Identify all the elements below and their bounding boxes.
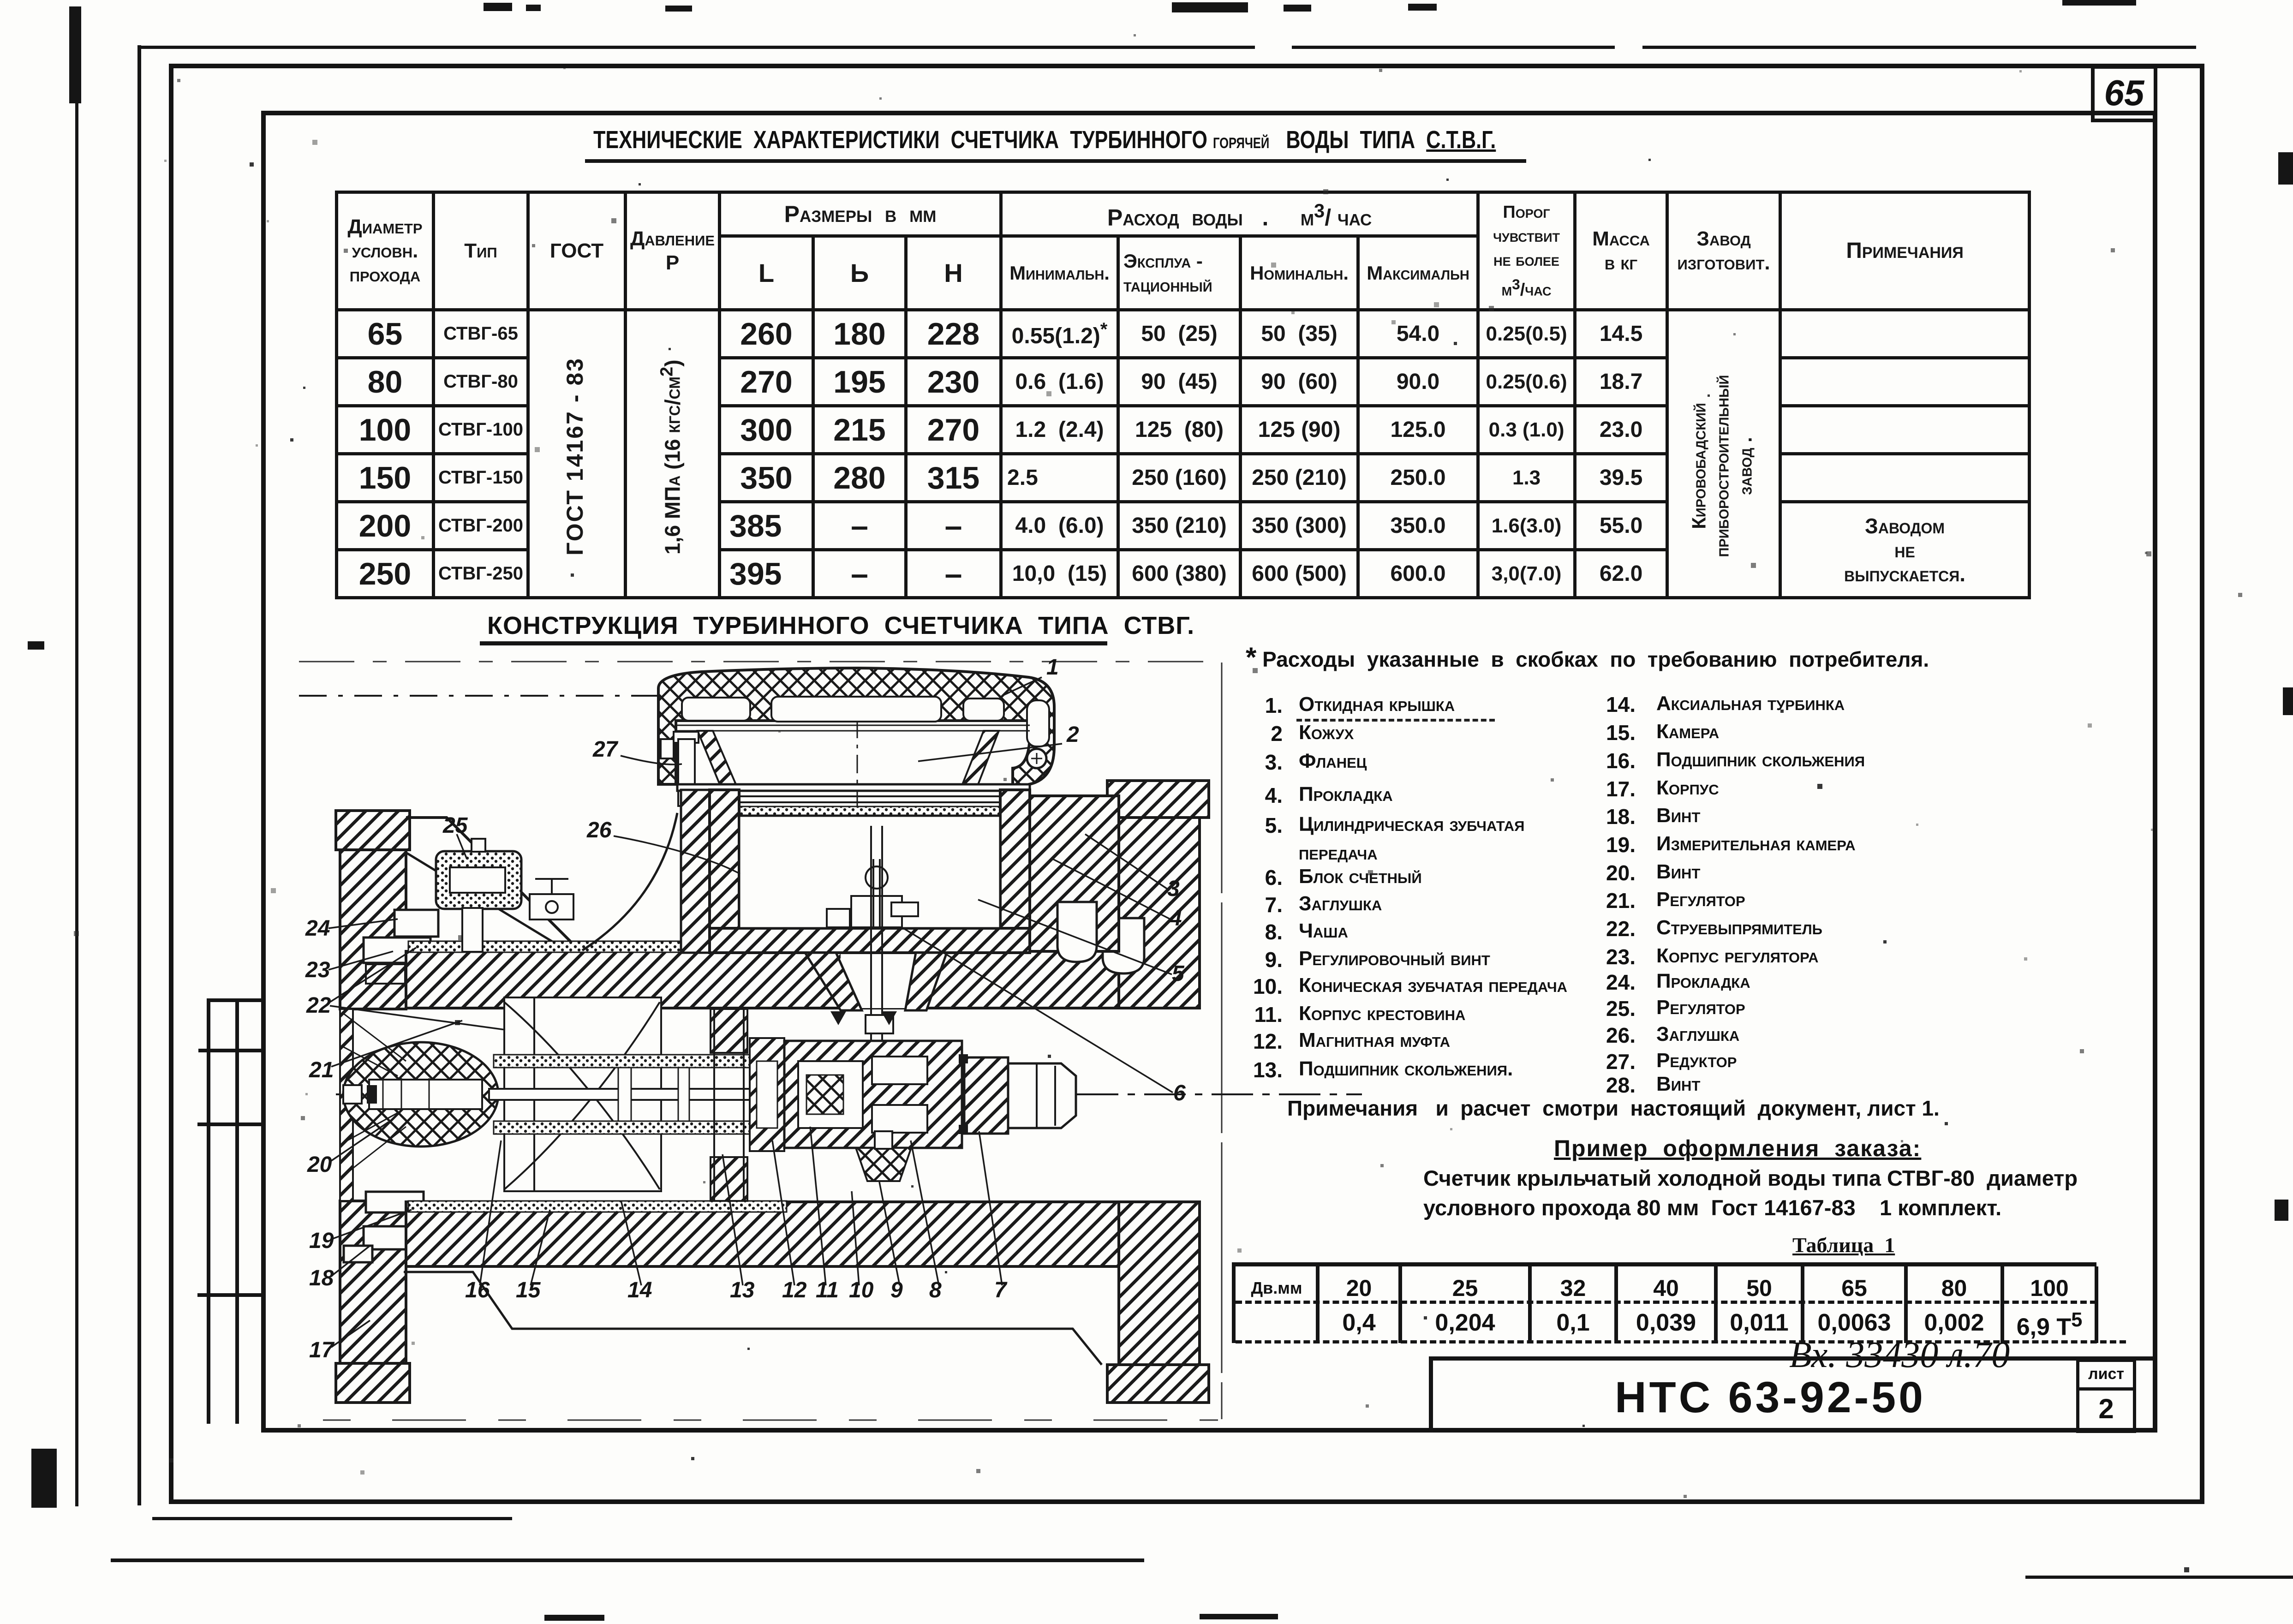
svg-text:9: 9 [890,1278,903,1302]
svg-text:17: 17 [309,1338,335,1362]
svg-text:20: 20 [307,1152,332,1177]
svg-text:19: 19 [309,1229,334,1253]
svg-text:15: 15 [516,1278,541,1302]
svg-text:5: 5 [1172,961,1185,986]
svg-text:12: 12 [782,1278,807,1302]
svg-text:7: 7 [994,1278,1008,1302]
svg-text:21: 21 [309,1058,334,1082]
svg-text:24: 24 [305,916,330,941]
svg-text:13: 13 [730,1278,755,1302]
svg-text:22: 22 [306,993,331,1018]
svg-text:18: 18 [309,1266,334,1290]
svg-text:4: 4 [1169,906,1182,931]
svg-text:8: 8 [929,1278,942,1302]
svg-text:26: 26 [586,818,612,842]
svg-text:6: 6 [1173,1081,1186,1105]
svg-text:16: 16 [465,1278,490,1302]
svg-text:27: 27 [592,737,619,762]
svg-text:11: 11 [816,1278,839,1302]
svg-text:3: 3 [1167,877,1180,901]
svg-text:25: 25 [442,813,468,838]
svg-text:10: 10 [849,1278,874,1302]
svg-text:2: 2 [1066,722,1079,747]
svg-text:23: 23 [305,958,330,982]
svg-text:14: 14 [627,1278,652,1302]
svg-text:1: 1 [1046,655,1059,680]
